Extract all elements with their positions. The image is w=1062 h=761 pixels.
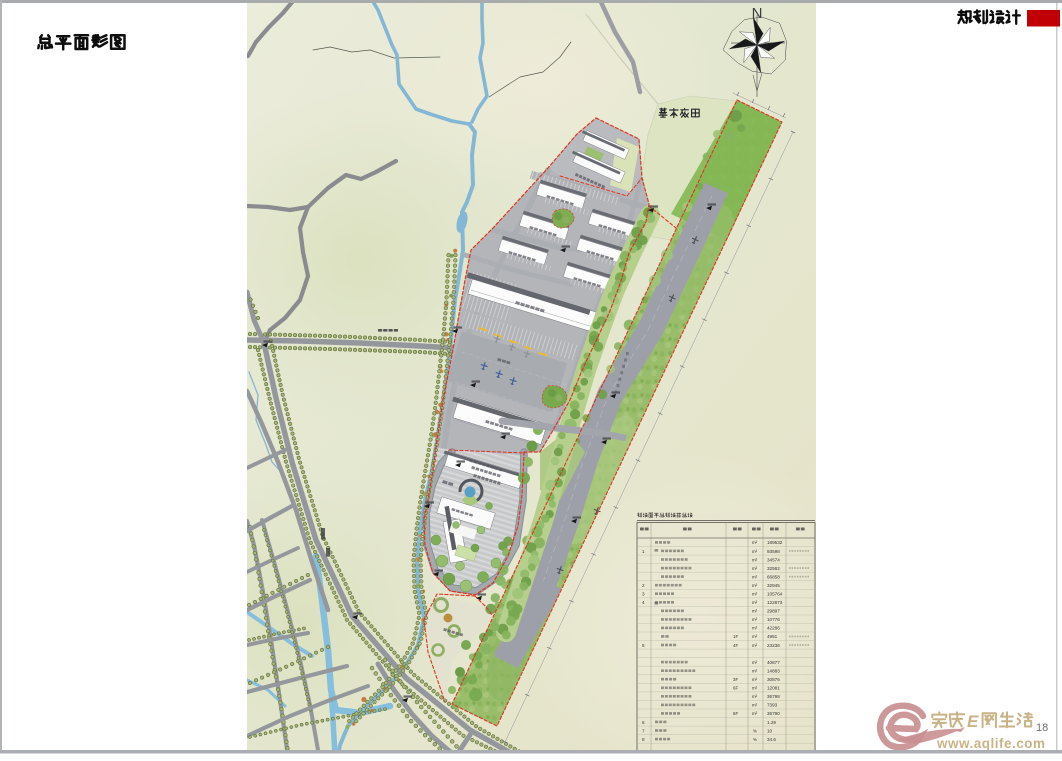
svg-text:32562: 32562: [767, 566, 780, 571]
svg-text:m²: m²: [752, 703, 758, 708]
svg-text:36790: 36790: [767, 711, 780, 716]
svg-text:m²: m²: [752, 540, 758, 545]
svg-text:18: 18: [1036, 722, 1048, 734]
svg-text:1.29: 1.29: [767, 720, 776, 725]
svg-text:42286: 42286: [767, 626, 780, 631]
svg-text:4F: 4F: [733, 643, 738, 648]
svg-text:%: %: [753, 737, 757, 742]
svg-text:7: 7: [642, 728, 645, 733]
svg-text:N: N: [752, 5, 763, 22]
svg-text:m²: m²: [752, 583, 758, 588]
svg-text:66858: 66858: [767, 574, 780, 579]
svg-text:10: 10: [767, 728, 773, 733]
svg-text:4951: 4951: [767, 634, 778, 639]
svg-text:93598: 93598: [767, 549, 780, 554]
svg-text:m²: m²: [752, 686, 758, 691]
svg-text:%: %: [753, 728, 757, 733]
svg-text:29897: 29897: [767, 609, 780, 614]
svg-text:m²: m²: [752, 557, 758, 562]
svg-text:23236: 23236: [767, 643, 780, 648]
svg-text:6F: 6F: [733, 686, 738, 691]
svg-text:36798: 36798: [767, 694, 780, 699]
svg-text:8: 8: [642, 737, 645, 742]
svg-text:7393: 7393: [767, 703, 778, 708]
svg-text:5: 5: [642, 643, 645, 648]
svg-text:www.aqlife.com: www.aqlife.com: [936, 736, 1046, 751]
svg-text:3F: 3F: [733, 677, 738, 682]
svg-text:32945: 32945: [767, 583, 780, 588]
svg-text:m²: m²: [752, 592, 758, 597]
svg-text:m²: m²: [752, 694, 758, 699]
svg-text:122873: 122873: [767, 600, 783, 605]
svg-text:1F: 1F: [733, 634, 738, 639]
svg-text:m²: m²: [752, 711, 758, 716]
svg-text:m²: m²: [752, 566, 758, 571]
svg-text:E: E: [967, 712, 979, 731]
svg-text:m²: m²: [752, 609, 758, 614]
svg-text:m²: m²: [752, 549, 758, 554]
svg-text:3: 3: [642, 592, 645, 597]
svg-text:105764: 105764: [767, 592, 783, 597]
svg-text:4: 4: [642, 600, 645, 605]
svg-text:m²: m²: [752, 660, 758, 665]
svg-text:6F: 6F: [733, 711, 738, 716]
svg-text:m²: m²: [752, 634, 758, 639]
svg-text:34.6: 34.6: [767, 737, 776, 742]
svg-text:6: 6: [642, 720, 645, 725]
svg-text:34574: 34574: [767, 557, 780, 562]
svg-text:30876: 30876: [767, 677, 780, 682]
svg-text:m²: m²: [752, 643, 758, 648]
svg-text:14883: 14883: [767, 669, 780, 674]
svg-text:10776: 10776: [767, 617, 780, 622]
svg-text:12081: 12081: [767, 686, 780, 691]
svg-text:40877: 40877: [767, 660, 780, 665]
svg-text:m²: m²: [752, 617, 758, 622]
svg-text:m²: m²: [752, 677, 758, 682]
svg-text:2: 2: [642, 583, 645, 588]
svg-text:m²: m²: [752, 600, 758, 605]
svg-text:189532: 189532: [767, 540, 783, 545]
svg-text:m²: m²: [752, 626, 758, 631]
svg-text:m²: m²: [752, 669, 758, 674]
svg-text:m²: m²: [752, 574, 758, 579]
svg-text:1: 1: [642, 549, 645, 554]
